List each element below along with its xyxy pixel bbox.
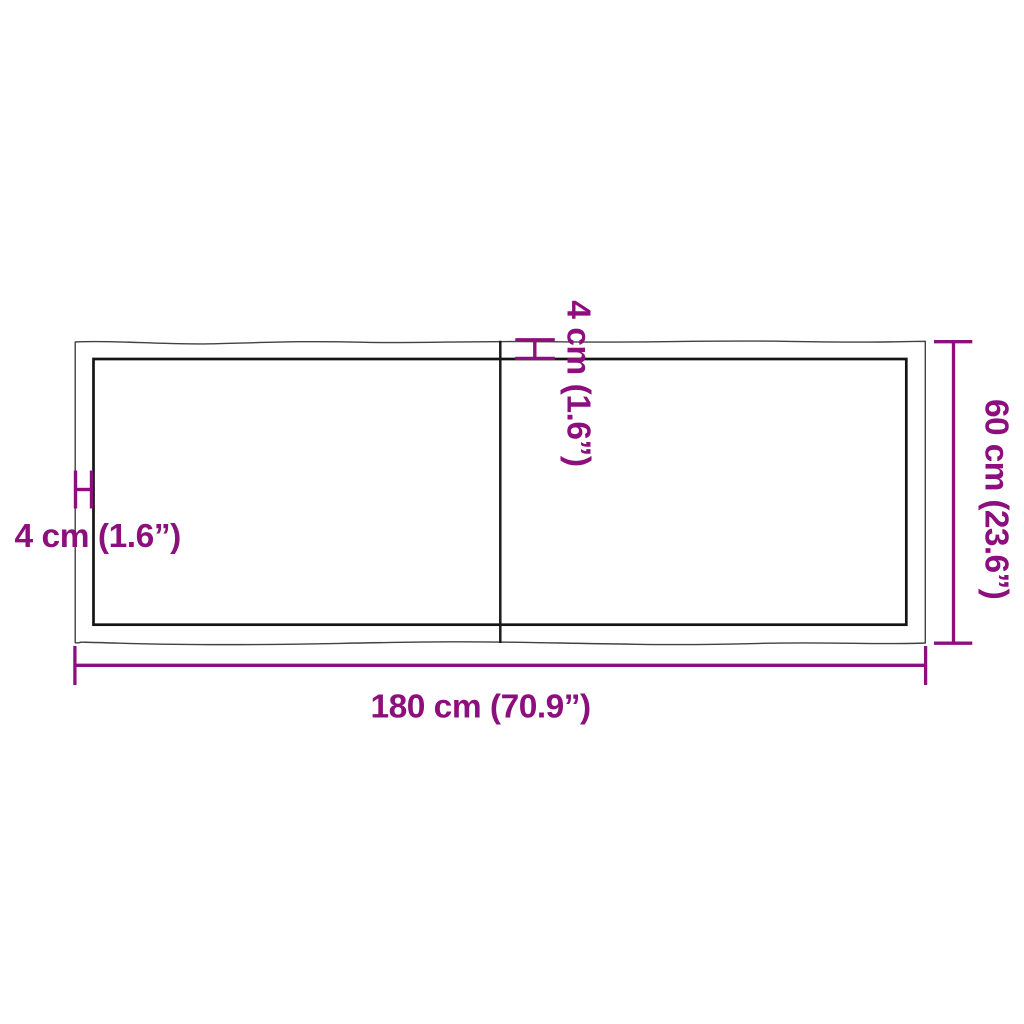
svg-text:60 cm (23.6”): 60 cm (23.6”) [978,399,1015,599]
svg-text:180 cm (70.9”): 180 cm (70.9”) [370,688,590,725]
svg-text:4 cm (1.6”): 4 cm (1.6”) [560,300,597,466]
svg-text:4 cm (1.6”): 4 cm (1.6”) [15,518,181,555]
